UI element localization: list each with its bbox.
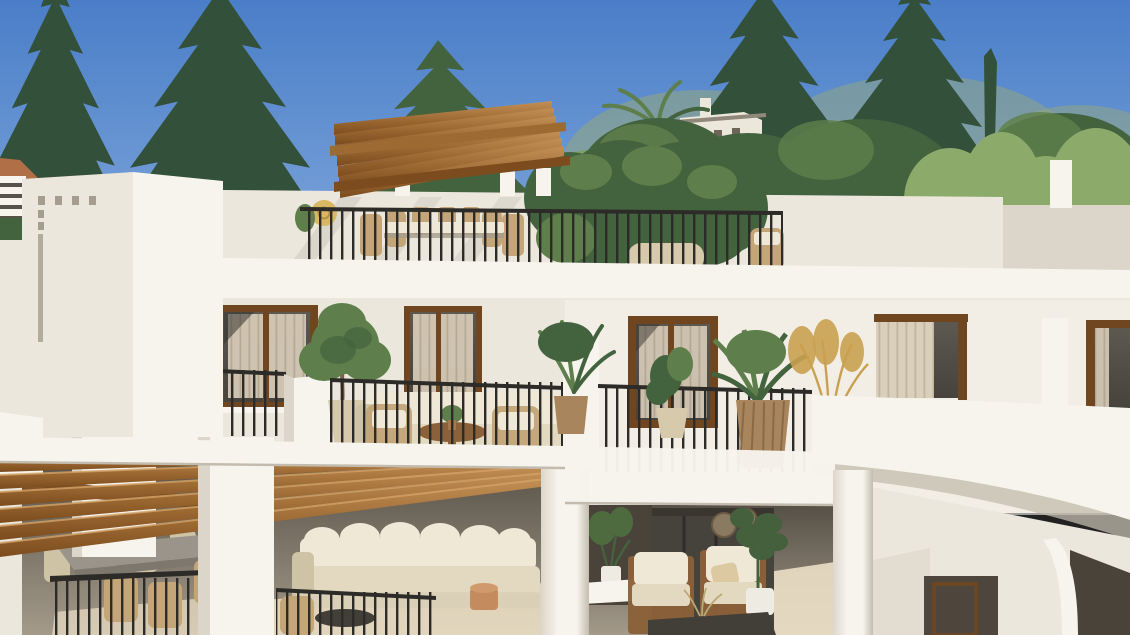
cypress-icon xyxy=(984,48,997,142)
roof-pillar xyxy=(1050,160,1072,208)
property-render-image xyxy=(0,0,1130,635)
window-4 xyxy=(874,314,968,400)
window-5 xyxy=(1086,320,1130,410)
ground-railing-1 xyxy=(50,570,205,635)
palm-planter xyxy=(554,396,588,434)
rooftop-railing xyxy=(300,207,783,266)
right-pier xyxy=(1042,318,1068,410)
ground-railing-2 xyxy=(276,588,436,635)
bottom-right-window xyxy=(924,576,998,635)
covered-terrace-right xyxy=(628,508,788,635)
cypress-icon xyxy=(745,20,758,116)
planter-block xyxy=(284,374,332,452)
render-canvas xyxy=(0,0,1130,635)
curved-pillar xyxy=(833,470,873,635)
pergola-post xyxy=(536,168,551,196)
terracotta-side-table xyxy=(470,583,498,610)
